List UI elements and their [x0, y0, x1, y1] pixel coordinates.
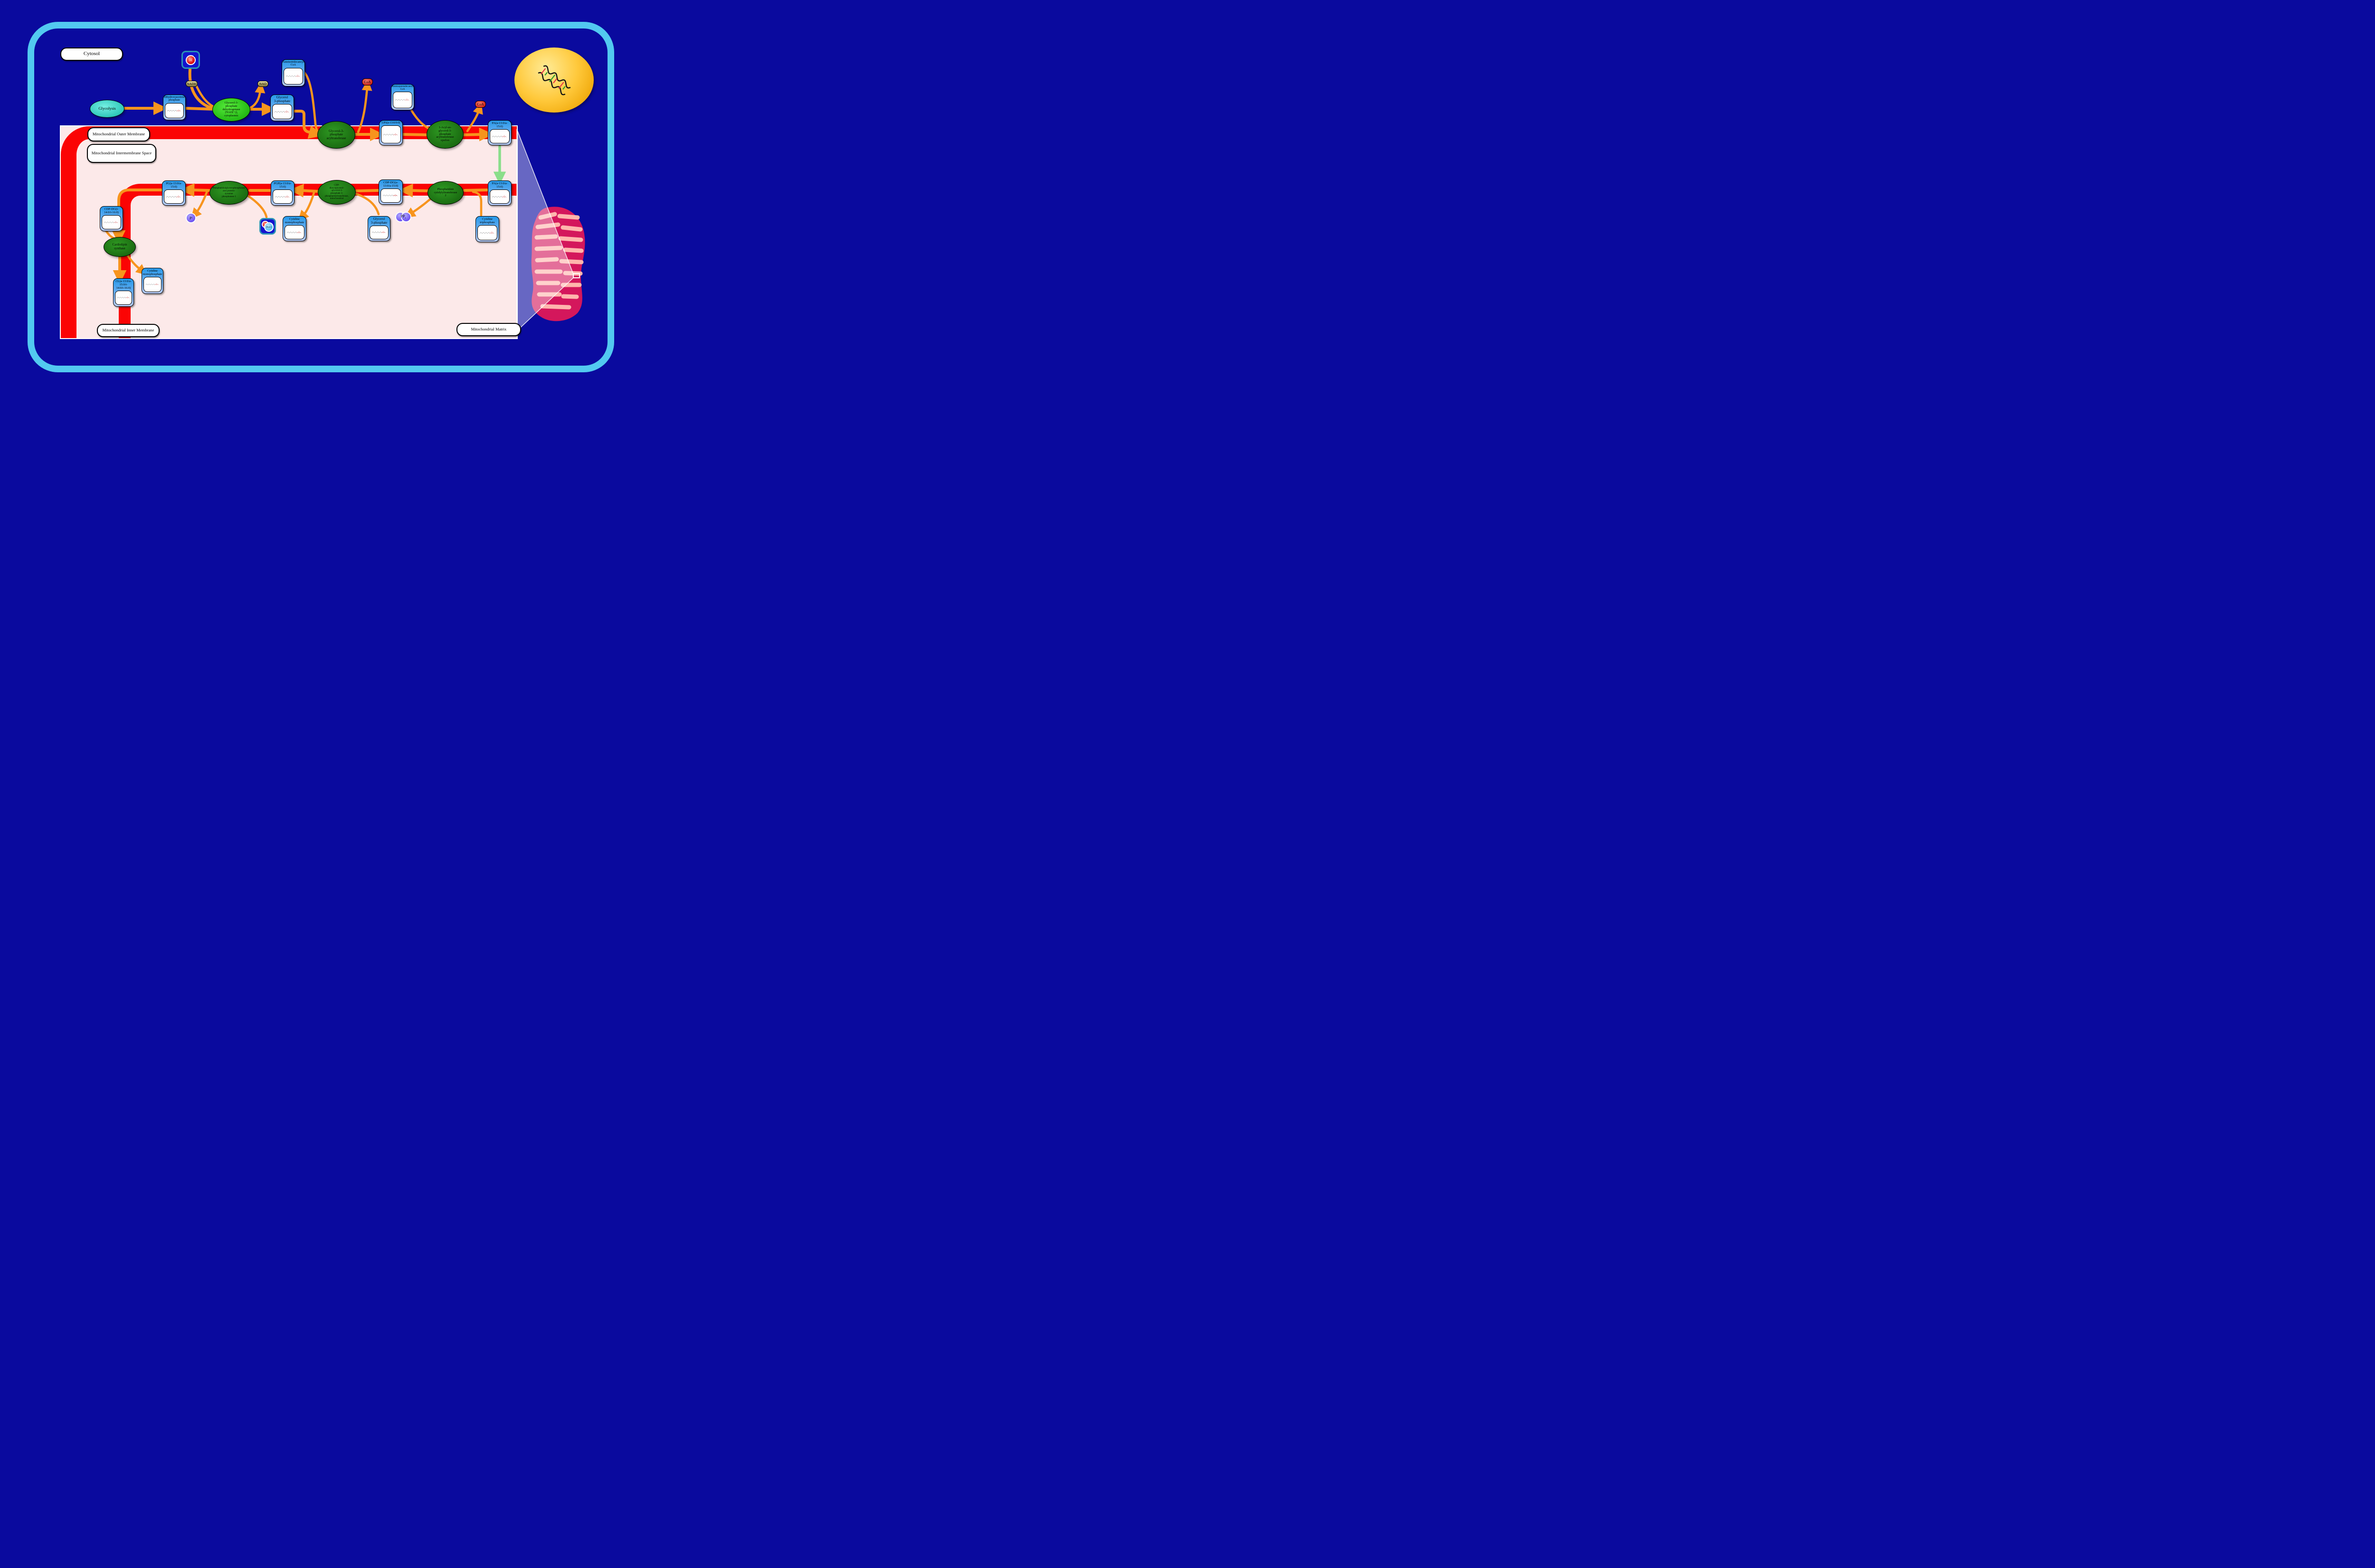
enzyme-cardiolipin-synthase[interactable]: Cardiolipinsynthase [104, 237, 136, 257]
metabolite-name: Cytidinetriphosphate [476, 217, 499, 224]
node-pg-a-13-0-a-15-0[interactable]: PG(a-13:0/a-15:0) [162, 180, 186, 206]
region-label-inner-membrane: Mitochondrial Inner Membrane [97, 324, 160, 337]
molecule-structure-icon [145, 282, 160, 287]
molecule-structure-icon [166, 108, 182, 113]
node-cdp-dg-a-13-0-a-15-0[interactable]: CDP-DG(a-13:0/a-15:0) [379, 179, 403, 205]
molecule-structure-icon [285, 74, 301, 79]
node-cytidine-monophosphate-left[interactable]: Cytidinemonophosphate [142, 268, 163, 294]
metabolite-name: Anteisotridecanoyl-CoA [282, 60, 304, 67]
water-icon: H2O [265, 223, 273, 231]
metabolite-name: Cytidinemonophosphate [283, 217, 306, 224]
molecule-structure-icon [382, 193, 399, 198]
molecule-structure-icon [491, 194, 508, 199]
metabolite-name: Anteisopentadecanoyl-CoA [391, 85, 414, 91]
molecule-structure-icon [116, 295, 131, 300]
region-label-outer-membrane: Mitochondrial Outer Membrane [87, 127, 150, 142]
metabolite-name: Glycerol3-phosphate [368, 217, 390, 225]
molecule-structure-icon [274, 194, 291, 199]
metabolite-name: Dihydroxyacetonephosphate [163, 95, 185, 102]
molecule-structure-icon [165, 194, 182, 199]
region-label-matrix: Mitochondrial Matrix [456, 323, 521, 336]
badge-pi[interactable]: Pi [187, 214, 195, 222]
metabolite-name: CL(a-13:0/a-15:0/i-14:0/i-16:0) [114, 279, 133, 290]
node-lpa-a-13-0-0-0[interactable]: LPA(a-13:0/0:0) [379, 120, 403, 145]
node-dihydroxyacetone-phosphate[interactable]: Dihydroxyacetonephosphate [163, 94, 186, 120]
molecule-structure-icon [382, 132, 399, 137]
enzyme-pgp-phosphatase[interactable]: Phosphatidylglycerophosphataseand protei… [209, 181, 248, 205]
enzyme-name: Phosphatidatecytidylyltransferase2 [434, 188, 457, 198]
enzyme-glycerol-3-phosphate-dehydrogenase[interactable]: Glycerol-3-phosphatedehydrogenase[NAD(+)… [212, 98, 250, 122]
metabolite-name: Glycerol3-phosphate [271, 95, 294, 103]
enzyme-glycolysis[interactable]: Glycolysis [90, 100, 124, 118]
badge-nadh[interactable]: NADH [186, 81, 198, 87]
molecule-structure-icon [479, 230, 495, 236]
region-label-cytosol: Cytosol [60, 47, 123, 61]
enzyme-name: Glycolysis [98, 106, 115, 111]
metabolite-name: PGP(a-13:0/a-15:0) [271, 181, 294, 189]
node-cardiolipin-cl[interactable]: CL(a-13:0/a-15:0/i-14:0/i-16:0) [113, 278, 134, 307]
enzyme-agpat-epsilon[interactable]: 1-Acyl-sn-glycerol-3-phosphateacyltransf… [427, 120, 464, 149]
region-label-intermembrane-space: Mitochondrial Intermembrane Space [87, 144, 156, 163]
inner-membrane-band [119, 184, 517, 338]
metabolite-name: CDP-DG(i-14:0/i-16:0) [100, 207, 123, 214]
badge-coa-2[interactable]: CoA [475, 101, 486, 108]
molecule-structure-icon [286, 230, 303, 235]
metabolite-name: LPA(a-13:0/0:0) [380, 121, 402, 124]
enzyme-name: CDP-diacylglycerol--glycerol-3-phosphate… [325, 184, 349, 200]
badge-ppi[interactable]: PPi [396, 212, 410, 222]
node-anteisotridecanoyl-coa[interactable]: Anteisotridecanoyl-CoA [282, 59, 305, 86]
enzyme-cdp-dag-g3p-phosphatidyltransferase[interactable]: CDP-diacylglycerol--glycerol-3-phosphate… [318, 180, 356, 205]
badge-h-plus[interactable]: H + [181, 51, 200, 69]
enzyme-name: 1-Acyl-sn-glycerol-3-phosphateacyltransf… [436, 126, 454, 143]
molecule-structure-icon [371, 230, 387, 235]
metabolite-name: PA(a-13:0/a-15:0) [488, 121, 511, 128]
enzyme-phosphatidate-cytidylyltransferase-2[interactable]: Phosphatidatecytidylyltransferase2 [427, 181, 464, 205]
molecule-structure-icon [274, 109, 290, 114]
metabolite-name: CDP-DG(a-13:0/a-15:0) [379, 180, 402, 188]
badge-nad[interactable]: NAD [257, 81, 268, 87]
node-pa-a-13-0-a-15-0-outer[interactable]: PA(a-13:0/a-15:0) [488, 120, 512, 145]
metabolite-name: PG(a-13:0/a-15:0) [162, 181, 185, 189]
node-cytidine-triphosphate[interactable]: Cytidinetriphosphate [475, 216, 499, 242]
pathway-diagram-cardiolipin-biosynthesis: Cytosol Mitochondrial Outer Membrane Mit… [0, 0, 641, 392]
molecule-structure-icon [103, 220, 119, 225]
node-anteisopentadecanoyl-coa[interactable]: Anteisopentadecanoyl-CoA [391, 84, 414, 110]
enzyme-glycerol-3-phosphate-acyltransferase[interactable]: Glycerol-3-phosphateacyltransferase [317, 121, 355, 149]
molecule-structure-icon [394, 97, 410, 103]
node-pa-a-13-0-a-15-0-inner[interactable]: PA(a-13:0/a-15:0) [488, 180, 512, 206]
metabolite-name: PA(a-13:0/a-15:0) [488, 181, 511, 189]
dna-helix-icon [528, 59, 580, 102]
badge-h2o[interactable]: H2O [259, 218, 276, 235]
metabolite-name: Cytidinemonophosphate [142, 268, 163, 276]
node-pgp-a-13-0-a-15-0[interactable]: PGP(a-13:0/a-15:0) [271, 180, 294, 206]
enzyme-name: Glycerol-3-phosphateacyltransferase [327, 130, 346, 141]
node-cdp-dg-i-14-0-i-16-0[interactable]: CDP-DG(i-14:0/i-16:0) [100, 206, 123, 231]
molecule-structure-icon [491, 134, 508, 139]
enzyme-name: Cardiolipinsynthase [113, 243, 127, 250]
node-cytidine-monophosphate-mid[interactable]: Cytidinemonophosphate [283, 216, 306, 241]
node-glycerol-3-phosphate-matrix[interactable]: Glycerol3-phosphate [368, 216, 390, 241]
enzyme-name: Glycerol-3-phosphatedehydrogenase[NAD(+)… [222, 102, 240, 118]
nucleus-illustration [514, 47, 594, 113]
badge-coa-1[interactable]: CoA [362, 78, 373, 85]
node-glycerol-3-phosphate-cytosol[interactable]: Glycerol3-phosphate [270, 94, 294, 121]
enzyme-name: Phosphatidylglycerophosphataseand protei… [212, 187, 245, 198]
